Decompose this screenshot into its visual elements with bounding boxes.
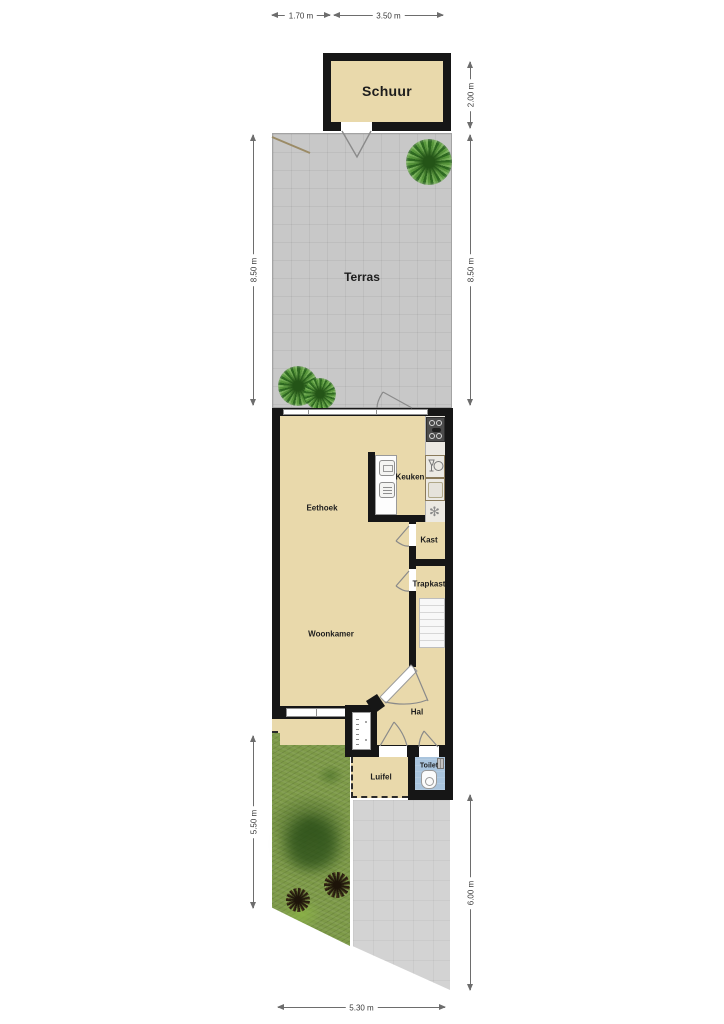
- dimension-right-bottom: 6.00 m: [470, 795, 471, 990]
- arrow-down-icon: [250, 902, 256, 909]
- floorplan-canvas: 1.70 m 3.50 m 2.00 m 8.50 m 8.50 m 5.50 …: [0, 0, 724, 1024]
- burner-icon: [436, 433, 442, 439]
- window-mullion: [308, 409, 309, 415]
- oven-detail: [383, 487, 392, 495]
- room-label-trapkast: Trapkast: [413, 580, 446, 589]
- dimension-right-middle: 8.50 m: [470, 135, 471, 405]
- room-label-luifel: Luifel: [370, 773, 391, 782]
- dimension-label: 8.50 m: [467, 254, 476, 286]
- dimension-label: 8.50 m: [250, 254, 259, 286]
- dimension-label: 6.00 m: [467, 876, 476, 908]
- dimension-label: 5.50 m: [250, 806, 259, 838]
- burner-icon: [436, 420, 442, 426]
- dimension-left-bottom: 5.50 m: [253, 736, 254, 908]
- dimension-bottom: 5.30 m: [278, 1007, 445, 1008]
- wall-toilet-bottom: [408, 790, 453, 800]
- room-label-hal: Hal: [411, 708, 423, 717]
- burner-icon: [429, 433, 435, 439]
- arrow-down-icon: [467, 984, 473, 991]
- arrow-down-icon: [467, 122, 473, 129]
- arrow-right-icon: [439, 1004, 446, 1010]
- burner-icon: [429, 420, 435, 426]
- room-label-eethoek: Eethoek: [306, 504, 337, 513]
- sink-unit: [425, 455, 445, 478]
- wall-toilet-left: [408, 757, 415, 790]
- stairs: [419, 598, 445, 648]
- sink-icon: [426, 456, 444, 477]
- dimension-label: 1.70 m: [285, 12, 317, 21]
- wall-right: [445, 408, 453, 800]
- room-label-schuur: Schuur: [362, 83, 412, 99]
- garden-path: [353, 800, 450, 990]
- kitchen-tall-cabinet: [375, 455, 397, 515]
- arrow-right-icon: [324, 12, 331, 18]
- fridge-detail: [383, 465, 393, 472]
- wall-left: [272, 408, 280, 718]
- dimension-label: 5.30 m: [345, 1004, 377, 1013]
- room-label-terras: Terras: [344, 270, 380, 284]
- arrow-up-icon: [467, 134, 473, 141]
- dimension-top-right: 3.50 m: [334, 15, 443, 16]
- livingroom-window: [286, 708, 348, 717]
- dark-plant-icon: [324, 872, 350, 898]
- plant-icon: [406, 139, 452, 185]
- rear-window: [283, 409, 428, 415]
- room-label-keuken: Keuken: [396, 473, 425, 482]
- toilet-fixture: [421, 770, 437, 789]
- arrow-down-icon: [467, 399, 473, 406]
- dimension-left-middle: 8.50 m: [253, 135, 254, 405]
- garden-bush: [276, 815, 348, 873]
- window-mullion: [376, 409, 377, 415]
- cooktop-center: [432, 428, 441, 432]
- cooktop: [426, 417, 445, 442]
- meter-cabinet: [352, 712, 371, 750]
- window-mullion: [316, 708, 317, 717]
- room-label-kast: Kast: [420, 536, 437, 545]
- kast-door-opening: [409, 524, 416, 546]
- arrow-up-icon: [467, 794, 473, 801]
- arrow-up-icon: [467, 61, 473, 68]
- meter-cabinet-ticks: [356, 719, 359, 745]
- arrow-down-icon: [250, 399, 256, 406]
- shed-door-opening: [341, 122, 372, 131]
- plant-icon: [304, 378, 336, 410]
- arrow-left-icon: [271, 12, 278, 18]
- dark-plant-icon: [286, 888, 310, 912]
- meter-dot: [365, 739, 367, 741]
- counter-square-inner: [428, 482, 443, 498]
- dimension-label: 3.50 m: [372, 12, 404, 21]
- arrow-left-icon: [333, 12, 340, 18]
- room-label-woonkamer: Woonkamer: [308, 630, 354, 639]
- arrow-left-icon: [277, 1004, 284, 1010]
- front-door-opening: [379, 746, 407, 757]
- toilet-bowl: [425, 777, 434, 786]
- room-label-toilet: Toilet: [420, 763, 438, 770]
- toilet-door-opening: [419, 746, 439, 757]
- dimension-top-left: 1.70 m: [272, 15, 330, 16]
- arrow-up-icon: [250, 134, 256, 141]
- wall-kitchen-vertical: [368, 452, 375, 522]
- counter-square: [425, 478, 445, 501]
- oven-icon: [379, 482, 395, 498]
- fridge-icon: [379, 460, 395, 476]
- arrow-up-icon: [250, 735, 256, 742]
- wall-kast-divider: [409, 559, 445, 566]
- arrow-right-icon: [437, 12, 444, 18]
- meter-dot: [365, 721, 367, 723]
- dimension-label: 2.00 m: [467, 79, 476, 111]
- flower-icon: ✻: [429, 505, 440, 518]
- dimension-right-top: 2.00 m: [470, 62, 471, 128]
